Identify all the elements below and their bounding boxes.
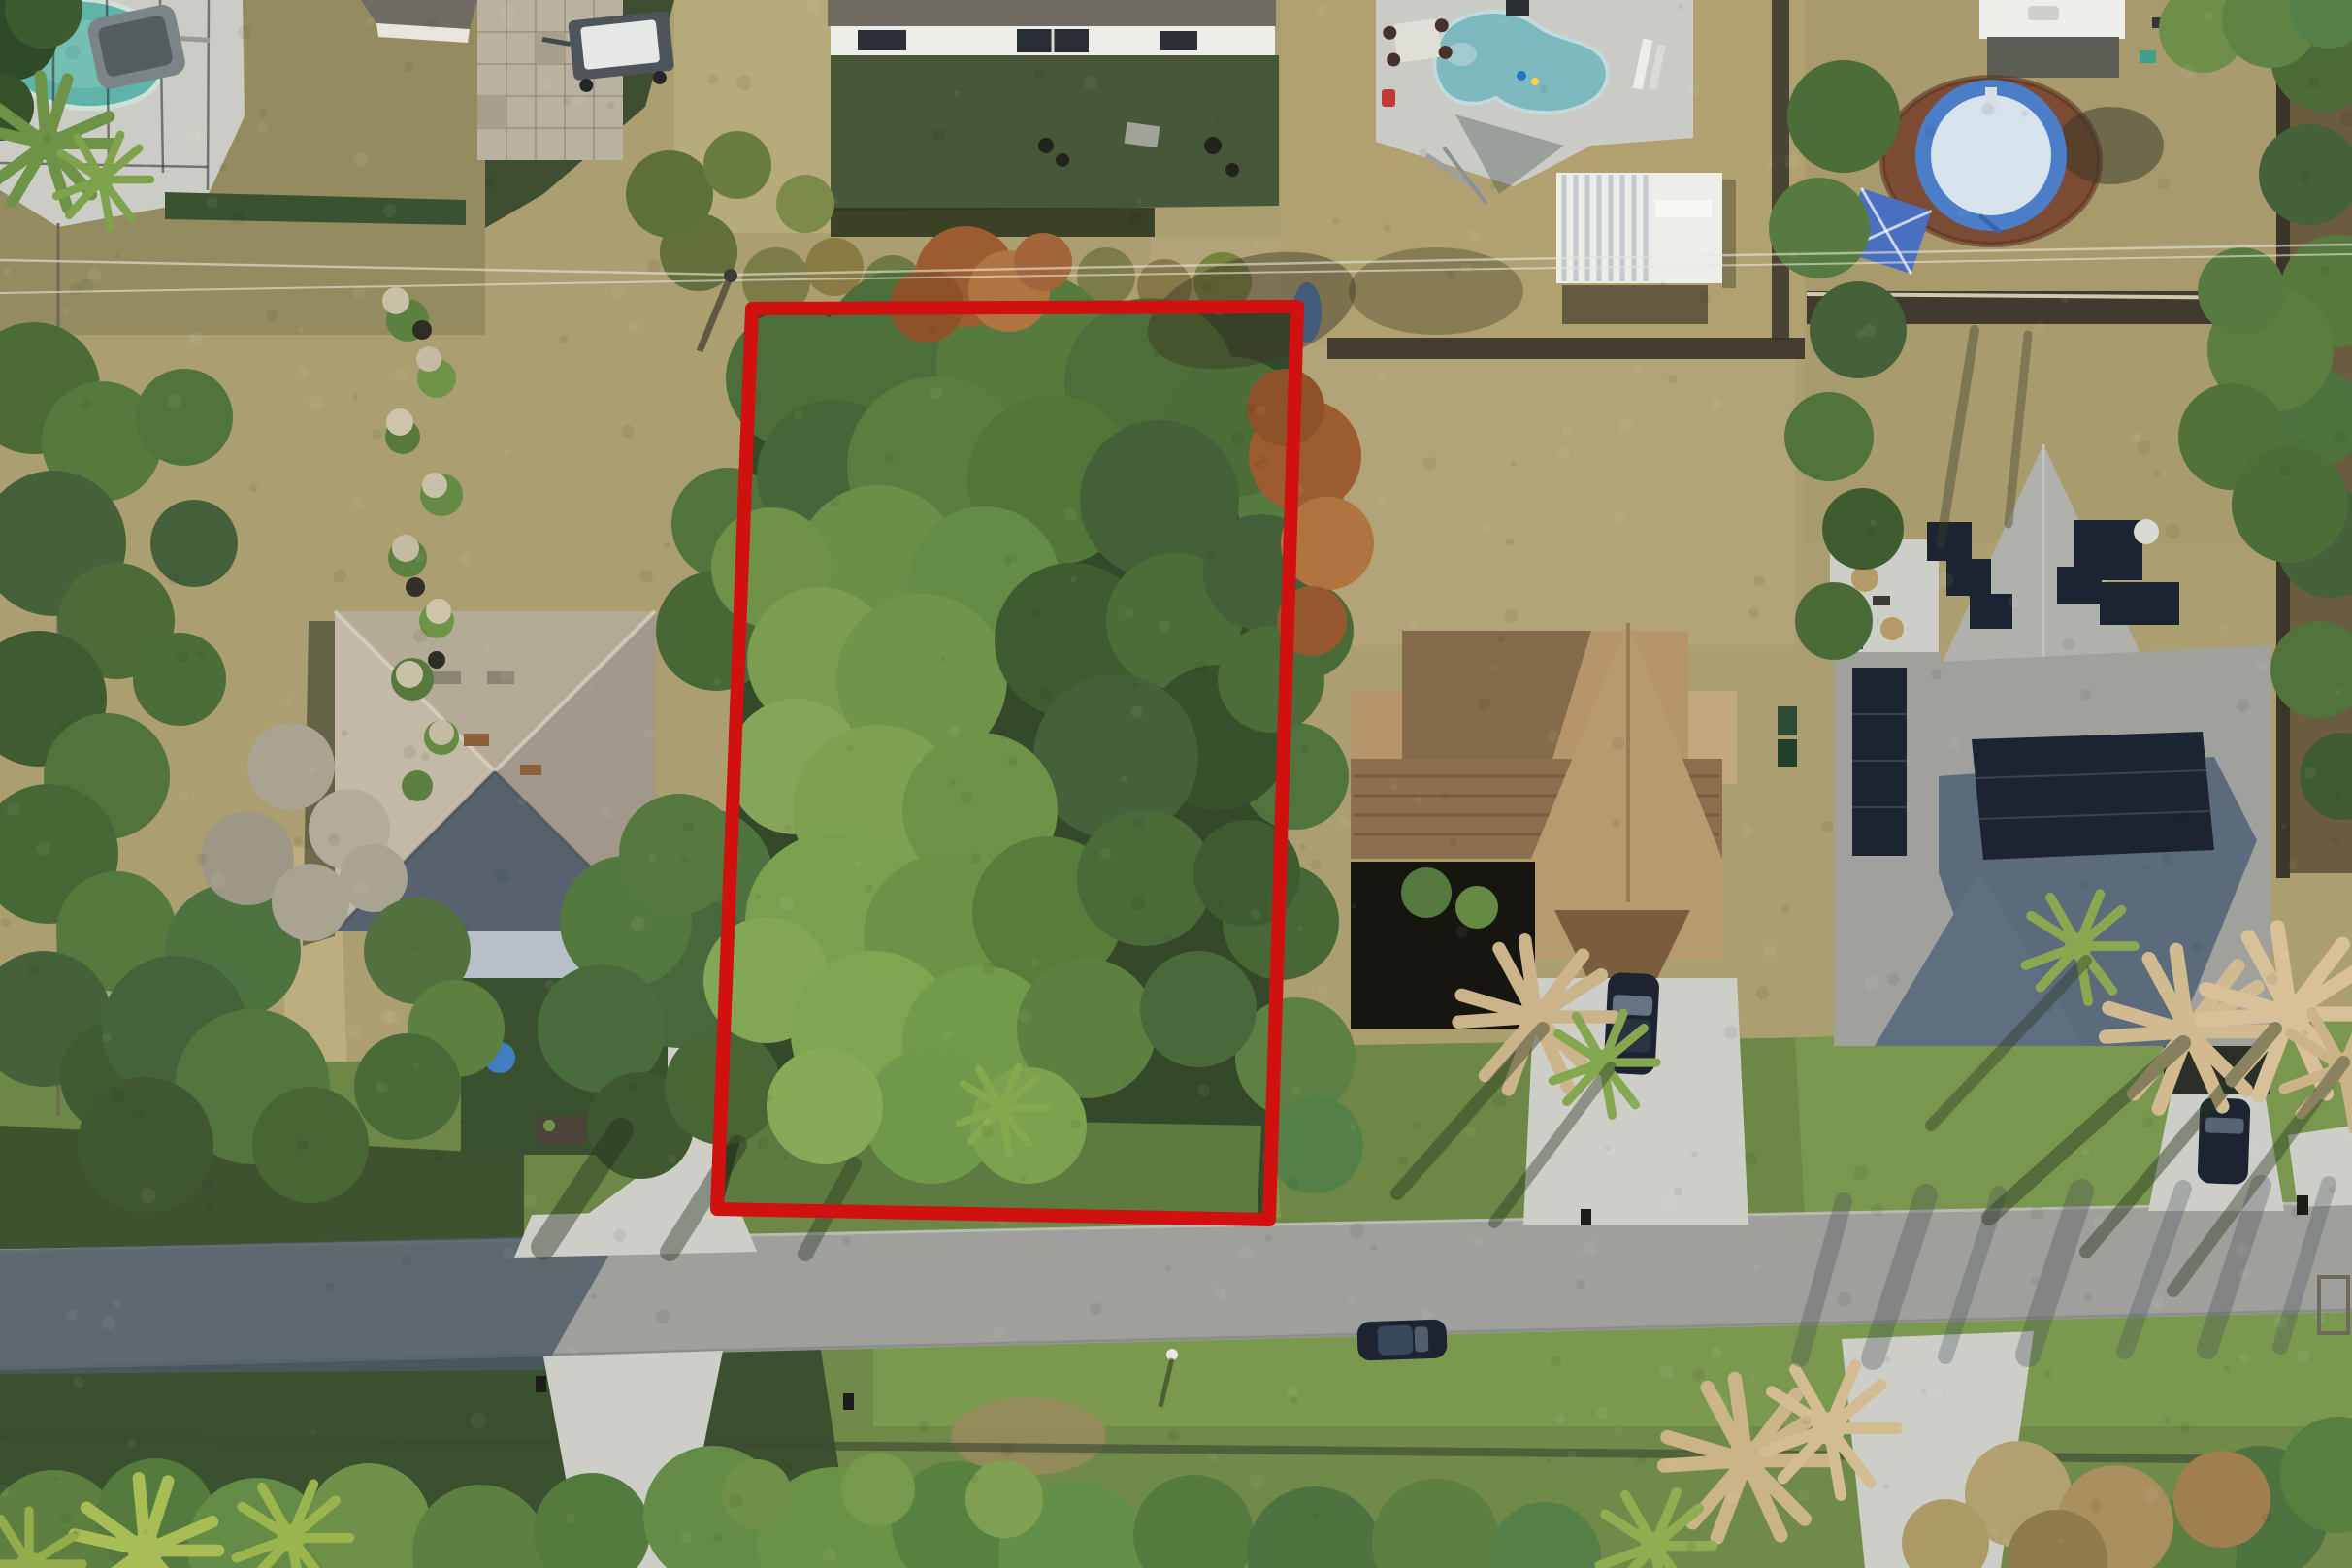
grain-speckle: [2144, 866, 2150, 871]
lounger: [2028, 6, 2059, 20]
grain-speckle: [2280, 465, 2292, 476]
patio-item: [1038, 138, 1054, 153]
paver-pad: [1125, 122, 1160, 148]
grain-speckle: [1604, 1142, 1617, 1156]
tree-canopy-blob: [252, 1087, 369, 1203]
grain-speckle: [1000, 1443, 1014, 1456]
grain-speckle: [601, 806, 613, 819]
grain-speckle: [205, 1204, 213, 1213]
grain-speckle: [932, 129, 945, 142]
grain-speckle: [2266, 973, 2277, 985]
grain-speckle: [1130, 706, 1142, 718]
patio-decking: [1987, 37, 2119, 78]
grain-speckle: [714, 678, 721, 685]
tree-canopy-blob: [396, 661, 423, 688]
grain-speckle: [73, 1377, 84, 1388]
grain-speckle: [1700, 293, 1711, 304]
tree-canopy-blob: [402, 770, 433, 801]
grain-speckle: [102, 1033, 111, 1042]
grain-speckle: [1613, 737, 1625, 750]
grain-speckle: [2164, 1417, 2172, 1424]
grain-speckle: [1991, 1526, 1998, 1533]
grain-speckle: [12, 110, 20, 118]
grain-speckle: [1554, 1414, 1564, 1423]
grain-speckle: [59, 724, 66, 731]
grain-speckle: [2336, 792, 2342, 799]
tree-canopy-blob: [2232, 446, 2348, 563]
grain-speckle: [333, 570, 346, 583]
grain-speckle: [179, 791, 187, 800]
grain-speckle: [736, 76, 752, 91]
mailbox: [1581, 1209, 1591, 1225]
grain-speckle: [1415, 797, 1421, 802]
grain-speckle: [1489, 183, 1495, 189]
grain-speckle: [949, 726, 960, 736]
grain-speckle: [196, 854, 207, 865]
grain-speckle: [1685, 1541, 1696, 1552]
grain-speckle: [1685, 83, 1699, 97]
grain-speckle: [1455, 926, 1468, 938]
pool-toy: [1517, 71, 1526, 81]
grain-speckle: [1209, 1453, 1218, 1461]
grain-speckle: [517, 796, 527, 805]
grain-speckle: [412, 945, 418, 951]
grain-speckle: [2031, 1276, 2040, 1285]
grain-speckle: [2081, 1148, 2089, 1156]
grain-speckle: [1627, 1099, 1642, 1114]
grain-speckle: [1231, 433, 1244, 445]
roof-vent: [464, 734, 489, 746]
grain-speckle: [413, 629, 428, 643]
grain-speckle: [1021, 1176, 1027, 1182]
grain-speckle: [460, 555, 470, 565]
tree-canopy-blob: [1795, 582, 1873, 660]
grain-speckle: [1468, 230, 1480, 242]
grain-speckle: [1339, 817, 1349, 827]
garden-table: [536, 1116, 586, 1145]
grain-speckle: [999, 731, 1008, 739]
mailbox: [843, 1393, 854, 1410]
grain-speckle: [66, 1310, 77, 1321]
grain-speckle: [2154, 470, 2161, 476]
grain-speckle: [211, 873, 225, 888]
grain-speckle: [707, 74, 718, 84]
grain-speckle: [504, 1247, 515, 1258]
tree-canopy-blob: [2198, 247, 2285, 335]
grain-speckle: [1813, 473, 1820, 479]
grain-speckle: [2336, 689, 2340, 694]
grain-speckle: [294, 836, 303, 845]
grain-speckle: [2332, 836, 2339, 844]
grain-speckle: [1195, 660, 1209, 673]
grain-speckle: [1441, 934, 1453, 946]
top-center-house: [828, 0, 1279, 237]
palm-crown: [1813, 1412, 1846, 1445]
grain-speckle: [1449, 836, 1457, 845]
grain-speckle: [1619, 420, 1633, 434]
grain-speckle: [929, 327, 935, 334]
grain-speckle: [471, 1413, 486, 1428]
tree-canopy-blob: [1140, 951, 1257, 1067]
grain-speckle: [1726, 1492, 1738, 1504]
grain-speckle: [1286, 1178, 1298, 1191]
grain-speckle: [380, 1011, 395, 1026]
grain-speckle: [1132, 682, 1138, 688]
tree-canopy-blob: [1033, 674, 1198, 839]
grain-speckle: [1867, 530, 1875, 538]
grain-speckle: [1090, 1302, 1102, 1315]
tree-canopy-blob: [354, 1033, 461, 1140]
grain-speckle: [1154, 350, 1160, 357]
grain-speckle: [62, 309, 68, 314]
grain-speckle: [1034, 68, 1046, 80]
palm-crown: [278, 1524, 306, 1552]
grain-speckle: [504, 449, 508, 454]
grain-speckle: [2334, 430, 2346, 442]
grain-speckle: [1128, 212, 1142, 226]
tree-canopy-blob: [150, 500, 238, 587]
grain-speckle: [2180, 1422, 2191, 1433]
window: [858, 30, 906, 50]
grain-speckle: [114, 1299, 121, 1307]
grain-speckle: [919, 1421, 930, 1432]
grain-speckle: [1784, 153, 1800, 169]
grain-speckle: [80, 278, 93, 292]
grain-speckle: [1864, 975, 1879, 991]
trash-bin: [1778, 739, 1797, 767]
grain-speckle: [1499, 17, 1507, 25]
grain-speckle: [1264, 1234, 1272, 1242]
grain-speckle: [1552, 1356, 1561, 1366]
grain-speckle: [1, 918, 10, 927]
grain-speckle: [2161, 853, 2173, 866]
grain-speckle: [1410, 622, 1416, 628]
grain-speckle: [484, 177, 495, 187]
tree-canopy-blob: [965, 1460, 1043, 1538]
tree-canopy-blob: [703, 131, 771, 199]
grain-speckle: [1506, 539, 1514, 546]
grain-speckle: [2221, 626, 2227, 632]
grain-speckle: [1313, 1512, 1319, 1518]
tree-canopy-blob: [767, 1048, 883, 1164]
grain-speckle: [2090, 1500, 2102, 1512]
grain-speckle: [1297, 926, 1303, 931]
carport-plant: [1455, 886, 1498, 929]
grain-speckle: [1019, 1010, 1031, 1023]
grain-speckle: [729, 1494, 742, 1508]
tree-canopy-blob: [1014, 233, 1072, 291]
tree-canopy-blob: [1822, 488, 1904, 570]
potted-plant: [543, 1120, 555, 1131]
grain-speckle: [640, 570, 653, 582]
grain-speckle: [628, 321, 638, 332]
grain-speckle: [354, 880, 368, 894]
grain-speckle: [259, 109, 268, 117]
grain-speckle: [1010, 561, 1016, 567]
grain-speckle: [1350, 1125, 1356, 1131]
grain-speckle: [1717, 1396, 1729, 1408]
grain-speckle: [1750, 1374, 1755, 1379]
grain-speckle: [2249, 1145, 2259, 1155]
grain-speckle: [202, 1180, 215, 1193]
tree-canopy-blob: [133, 633, 226, 726]
grain-speckle: [1756, 987, 1769, 999]
grain-speckle: [282, 1211, 287, 1216]
tree-canopy-blob: [429, 720, 454, 745]
grain-speckle: [427, 18, 438, 29]
grain-speckle: [1887, 973, 1899, 985]
grain-speckle: [197, 651, 204, 658]
grain-speckle: [1636, 1455, 1646, 1465]
grain-speckle: [779, 896, 794, 910]
grain-speckle: [1958, 210, 1965, 216]
grain-speckle: [784, 825, 791, 832]
grain-speckle: [502, 16, 513, 28]
grain-speckle: [1798, 1490, 1809, 1501]
grill: [1506, 0, 1529, 16]
grain-speckle: [1981, 103, 1994, 115]
grain-speckle: [1678, 4, 1682, 9]
grain-speckle: [755, 894, 761, 899]
grain-speckle: [1240, 1245, 1254, 1258]
grain-speckle: [1504, 608, 1518, 622]
grain-speckle: [70, 283, 82, 295]
grain-speckle: [823, 1549, 836, 1562]
palm-crown: [90, 168, 114, 191]
grain-speckle: [664, 541, 670, 548]
grain-speckle: [430, 1149, 444, 1163]
grain-speckle: [1767, 161, 1774, 168]
grain-speckle: [1214, 1287, 1226, 1299]
tree-canopy-blob: [412, 320, 432, 340]
grain-speckle: [366, 17, 374, 25]
aerial-photo: [0, 0, 2352, 1568]
grain-speckle: [1040, 687, 1053, 700]
grain-speckle: [296, 1139, 308, 1151]
patio-item: [1225, 163, 1239, 177]
grain-speckle: [643, 729, 654, 739]
patio-umbrella: [1880, 617, 1904, 640]
tree-canopy-blob: [382, 287, 409, 314]
grain-speckle: [1753, 1263, 1760, 1270]
grain-speckle: [1390, 783, 1398, 791]
grain-speckle: [1474, 1237, 1482, 1245]
grain-speckle: [917, 756, 924, 763]
tree-canopy-blob: [428, 651, 445, 669]
grain-speckle: [413, 1063, 419, 1069]
grain-speckle: [831, 497, 840, 506]
grain-speckle: [2021, 110, 2028, 116]
grain-speckle: [1030, 959, 1039, 967]
grain-speckle: [352, 394, 358, 400]
grain-speckle: [1883, 1356, 1890, 1363]
grain-speckle: [2046, 1006, 2053, 1013]
grain-speckle: [1383, 224, 1391, 233]
grain-speckle: [1567, 1451, 1577, 1460]
grain-speckle: [141, 1189, 156, 1204]
grain-speckle: [545, 980, 555, 990]
grain-speckle: [523, 1193, 537, 1207]
grain-speckle: [1484, 525, 1490, 532]
grain-speckle: [1251, 909, 1261, 920]
grain-speckle: [993, 1326, 1004, 1338]
grain-speckle: [2151, 1294, 2165, 1308]
grain-speckle: [1258, 456, 1267, 465]
grain-speckle: [1030, 609, 1041, 620]
grain-speckle: [1547, 731, 1558, 742]
grain-speckle: [1921, 1388, 1926, 1393]
grain-speckle: [2002, 1537, 2008, 1543]
grain-speckle: [502, 4, 514, 16]
grain-speckle: [405, 62, 414, 72]
grain-speckle: [647, 259, 661, 273]
grain-speckle: [1124, 608, 1133, 618]
grain-speckle: [82, 400, 91, 409]
grain-speckle: [2204, 11, 2213, 20]
grain-speckle: [1413, 1122, 1421, 1129]
grain-speckle: [309, 395, 323, 409]
grain-speckle: [1660, 282, 1666, 288]
grain-speckle: [189, 332, 203, 345]
grain-speckle: [560, 335, 569, 343]
grain-speckle: [1870, 519, 1877, 526]
grain-speckle: [1666, 1458, 1676, 1468]
grain-speckle: [2081, 881, 2089, 889]
grain-speckle: [1692, 1368, 1705, 1381]
grain-speckle: [2043, 1370, 2052, 1379]
grain-speckle: [484, 644, 491, 651]
grain-speckle: [612, 285, 625, 298]
grain-speckle: [300, 368, 310, 377]
back-fence-hedge: [831, 208, 1155, 237]
grain-speckle: [266, 310, 278, 321]
tree-canopy-blob: [2173, 1451, 2270, 1548]
grain-speckle: [328, 833, 340, 845]
grain-speckle: [2237, 699, 2249, 711]
grain-speckle: [1290, 1395, 1298, 1403]
tree-canopy-blob: [426, 599, 451, 624]
grain-speckle: [2034, 322, 2044, 333]
rear-fence: [1327, 338, 1805, 359]
grain-speckle: [4, 268, 11, 275]
grain-speckle: [1350, 1223, 1365, 1238]
grain-speckle: [37, 842, 50, 856]
grain-speckle: [2137, 441, 2150, 454]
tree-canopy-blob: [247, 723, 335, 810]
grain-speckle: [1596, 1407, 1608, 1419]
grain-speckle: [1422, 457, 1436, 471]
grain-speckle: [207, 197, 218, 209]
tree-canopy-blob: [1787, 60, 1900, 173]
grain-speckle: [758, 1137, 769, 1149]
grain-speckle: [2194, 1106, 2202, 1114]
grain-speckle: [1130, 896, 1145, 910]
grain-speckle: [342, 730, 348, 736]
palm-crown: [1727, 1441, 1767, 1481]
grain-speckle: [310, 1428, 317, 1435]
grain-speckle: [28, 964, 40, 976]
grain-speckle: [1461, 263, 1471, 273]
grain-speckle: [1743, 826, 1751, 834]
grain-speckle: [346, 1024, 362, 1039]
grain-speckle: [2063, 637, 2075, 650]
grain-speckle: [1064, 507, 1078, 521]
grain-speckle: [284, 697, 291, 703]
grain-speckle: [1316, 5, 1325, 15]
grain-speckle: [656, 1310, 670, 1324]
grain-speckle: [2181, 64, 2196, 79]
grain-speckle: [1546, 1459, 1551, 1464]
grain-speckle: [563, 98, 570, 105]
red-chair: [1382, 89, 1395, 107]
grain-speckle: [2130, 432, 2140, 442]
grain-speckle: [401, 1255, 411, 1265]
grain-speckle: [1137, 199, 1142, 204]
grain-speckle: [1287, 1386, 1298, 1397]
grain-speckle: [382, 203, 397, 217]
grain-speckle: [2006, 485, 2011, 491]
grain-speckle: [2329, 1187, 2336, 1193]
palm-crown: [991, 1097, 1012, 1119]
grain-speckle: [1133, 818, 1144, 829]
tree-canopy-blob: [1810, 281, 1907, 378]
grain-speckle: [805, 0, 820, 15]
grain-speckle: [1615, 1426, 1622, 1434]
grain-speckle: [1931, 669, 1942, 679]
grain-speckle: [1398, 1156, 1408, 1165]
grain-speckle: [2280, 950, 2291, 961]
grain-speckle: [1562, 426, 1574, 438]
grain-speckle: [566, 1514, 575, 1523]
grain-speckle: [111, 1088, 126, 1103]
grain-speckle: [231, 212, 245, 225]
grain-speckle: [649, 855, 656, 862]
grain-speckle: [167, 394, 181, 408]
grain-speckle: [500, 669, 513, 682]
grain-speckle: [1370, 1244, 1378, 1252]
grain-speckle: [983, 963, 996, 975]
grain-speckle: [943, 284, 949, 290]
grain-speckle: [414, 553, 424, 563]
grain-speckle: [586, 685, 593, 692]
grain-speckle: [61, 1513, 72, 1523]
grain-speckle: [1822, 821, 1833, 832]
grain-speckle: [2281, 823, 2286, 828]
grain-speckle: [218, 163, 227, 172]
grain-speckle: [422, 752, 430, 760]
grain-speckle: [1247, 404, 1256, 412]
side-fence: [1772, 0, 1789, 340]
grain-speckle: [713, 1533, 723, 1543]
grain-speckle: [495, 868, 509, 883]
grain-speckle: [1311, 860, 1321, 869]
grain-speckle: [1299, 844, 1305, 850]
grain-speckle: [2282, 97, 2288, 103]
carport-plant: [1401, 867, 1452, 918]
mailbox: [536, 1376, 546, 1392]
grain-speckle: [955, 90, 961, 96]
grain-speckle: [2262, 1512, 2273, 1523]
grain-speckle: [1576, 1279, 1585, 1289]
grain-speckle: [1123, 1076, 1128, 1082]
tree-canopy-blob: [1077, 810, 1213, 946]
grain-speckle: [622, 425, 635, 438]
grain-speckle: [2158, 178, 2170, 189]
grain-speckle: [931, 387, 942, 399]
grain-speckle: [463, 926, 469, 931]
grain-speckle: [1724, 1026, 1738, 1039]
grain-speckle: [2273, 1314, 2288, 1328]
